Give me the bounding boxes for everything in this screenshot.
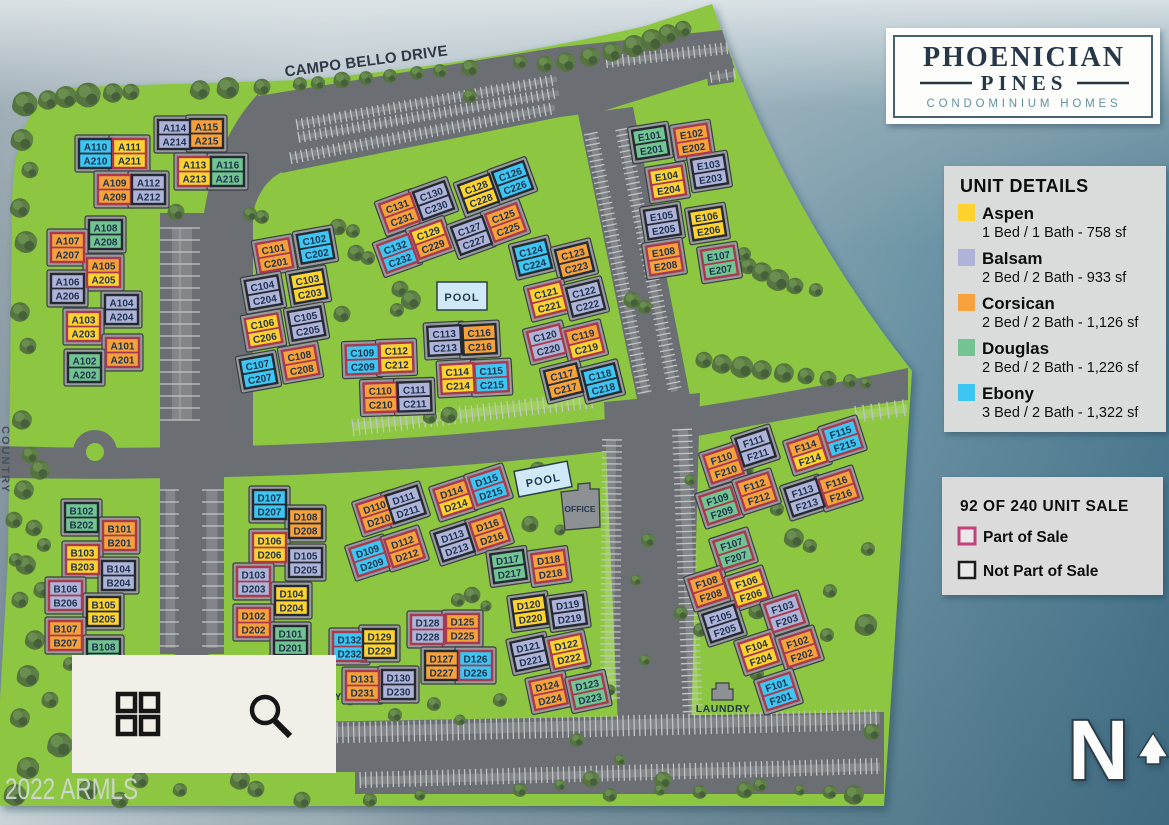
svg-text:D230: D230: [387, 688, 411, 699]
svg-text:A207: A207: [56, 251, 80, 262]
svg-text:A212: A212: [137, 193, 161, 204]
svg-text:Not Part of Sale: Not Part of Sale: [983, 563, 1099, 580]
svg-text:B108: B108: [92, 643, 116, 654]
svg-text:A214: A214: [163, 138, 187, 149]
svg-text:D104: D104: [280, 590, 304, 601]
svg-text:A104: A104: [110, 299, 134, 310]
svg-text:D227: D227: [430, 669, 454, 680]
svg-text:B101: B101: [108, 525, 132, 536]
svg-text:D207: D207: [258, 508, 282, 519]
svg-text:92 OF 240 UNIT SALE: 92 OF 240 UNIT SALE: [960, 498, 1129, 515]
svg-text:C211: C211: [403, 399, 427, 411]
svg-text:A206: A206: [56, 292, 80, 303]
svg-text:C115: C115: [479, 366, 503, 378]
svg-text:LAUNDRY: LAUNDRY: [696, 703, 750, 715]
svg-text:D129: D129: [368, 633, 392, 644]
svg-text:D105: D105: [294, 552, 318, 563]
svg-text:B104: B104: [107, 565, 131, 576]
svg-text:C111: C111: [403, 385, 427, 397]
svg-text:B204: B204: [107, 579, 131, 590]
svg-text:A108: A108: [94, 224, 118, 235]
svg-text:B203: B203: [71, 563, 95, 574]
svg-text:A203: A203: [72, 330, 96, 341]
svg-text:COUNTRY: COUNTRY: [0, 426, 11, 494]
svg-text:C209: C209: [351, 362, 376, 374]
svg-text:D127: D127: [430, 655, 454, 666]
svg-text:A204: A204: [110, 313, 134, 324]
svg-text:D103: D103: [242, 571, 266, 582]
svg-text:A211: A211: [118, 157, 142, 168]
svg-text:A213: A213: [183, 175, 207, 186]
svg-text:A105: A105: [92, 262, 116, 273]
svg-text:D125: D125: [451, 618, 475, 629]
svg-text:B105: B105: [92, 601, 116, 612]
svg-text:A215: A215: [195, 137, 219, 148]
svg-text:D206: D206: [258, 551, 282, 562]
svg-text:D128: D128: [416, 619, 440, 630]
svg-text:A115: A115: [195, 123, 219, 134]
svg-text:D108: D108: [294, 513, 318, 524]
svg-text:D107: D107: [258, 494, 282, 505]
svg-text:A107: A107: [56, 237, 80, 248]
svg-text:D101: D101: [279, 630, 303, 641]
svg-text:A216: A216: [216, 175, 240, 186]
svg-text:B202: B202: [70, 521, 94, 532]
svg-text:A210: A210: [84, 157, 108, 168]
svg-text:1 Bed / 1 Bath - 758 sf: 1 Bed / 1 Bath - 758 sf: [982, 225, 1127, 241]
svg-text:C216: C216: [468, 342, 493, 354]
svg-text:A208: A208: [94, 238, 118, 249]
svg-text:C114: C114: [445, 367, 469, 379]
svg-text:A202: A202: [73, 371, 97, 382]
svg-text:PINES: PINES: [981, 71, 1068, 95]
svg-text:B102: B102: [70, 507, 94, 518]
svg-text:A114: A114: [163, 124, 187, 135]
svg-text:D229: D229: [368, 647, 392, 658]
svg-text:A205: A205: [92, 276, 116, 287]
svg-text:A106: A106: [56, 278, 80, 289]
svg-text:D228: D228: [416, 633, 440, 644]
svg-text:Balsam: Balsam: [982, 249, 1042, 268]
svg-text:2 Bed / 2 Bath - 1,226 sf: 2 Bed / 2 Bath - 1,226 sf: [982, 360, 1139, 376]
svg-text:C113: C113: [432, 329, 456, 341]
svg-text:D232: D232: [338, 650, 362, 661]
svg-text:D203: D203: [242, 585, 266, 596]
svg-text:D205: D205: [294, 566, 318, 577]
svg-text:C116: C116: [467, 328, 491, 340]
svg-text:D225: D225: [451, 632, 475, 643]
svg-text:Ebony: Ebony: [982, 384, 1034, 403]
svg-text:A102: A102: [73, 357, 97, 368]
svg-text:D202: D202: [242, 626, 266, 637]
svg-text:D131: D131: [351, 675, 375, 686]
svg-text:B207: B207: [54, 639, 78, 650]
svg-text:A111: A111: [118, 143, 141, 154]
svg-text:C213: C213: [433, 343, 458, 355]
svg-text:A209: A209: [103, 193, 127, 204]
svg-text:B205: B205: [92, 615, 116, 626]
svg-text:D106: D106: [258, 537, 282, 548]
svg-text:C212: C212: [385, 360, 410, 372]
svg-text:D201: D201: [279, 644, 303, 655]
svg-text:2 Bed / 2 Bath - 1,126 sf: 2 Bed / 2 Bath - 1,126 sf: [982, 315, 1139, 331]
svg-text:POOL: POOL: [444, 292, 479, 304]
svg-text:B206: B206: [54, 599, 78, 610]
svg-text:D204: D204: [280, 604, 304, 615]
svg-text:D132: D132: [338, 636, 362, 647]
svg-text:D102: D102: [242, 612, 266, 623]
svg-text:D226: D226: [464, 669, 488, 680]
svg-text:A110: A110: [84, 143, 108, 154]
svg-text:Corsican: Corsican: [982, 294, 1055, 313]
svg-text:3 Bed / 2 Bath - 1,322 sf: 3 Bed / 2 Bath - 1,322 sf: [982, 405, 1139, 421]
svg-text:B103: B103: [71, 549, 95, 560]
svg-text:Douglas: Douglas: [982, 339, 1049, 358]
svg-text:C110: C110: [368, 386, 392, 398]
svg-text:B107: B107: [54, 625, 78, 636]
svg-text:CONDOMINIUM HOMES: CONDOMINIUM HOMES: [927, 98, 1122, 110]
svg-text:2022 ARMLS: 2022 ARMLS: [5, 773, 138, 806]
svg-text:A109: A109: [103, 179, 127, 190]
svg-text:OFFICE: OFFICE: [564, 504, 595, 514]
svg-text:B201: B201: [108, 539, 132, 550]
svg-text:C214: C214: [446, 381, 471, 393]
svg-text:A112: A112: [137, 179, 161, 190]
svg-text:C215: C215: [480, 380, 505, 392]
svg-text:Aspen: Aspen: [982, 204, 1034, 223]
svg-text:A201: A201: [111, 356, 135, 367]
svg-text:N: N: [1068, 703, 1129, 797]
svg-text:B106: B106: [54, 585, 78, 596]
svg-text:Part of Sale: Part of Sale: [983, 529, 1069, 546]
svg-text:UNIT DETAILS: UNIT DETAILS: [960, 176, 1089, 196]
svg-text:A113: A113: [183, 161, 207, 172]
svg-text:C109: C109: [350, 348, 375, 360]
svg-text:2 Bed / 2 Bath - 933 sf: 2 Bed / 2 Bath - 933 sf: [982, 270, 1127, 286]
svg-text:A103: A103: [72, 316, 96, 327]
svg-text:C112: C112: [384, 346, 408, 358]
svg-text:D126: D126: [464, 655, 488, 666]
svg-text:D208: D208: [294, 527, 318, 538]
svg-text:A101: A101: [111, 342, 135, 353]
svg-text:A116: A116: [216, 161, 240, 172]
svg-text:C210: C210: [369, 400, 394, 412]
svg-text:D130: D130: [387, 674, 411, 685]
svg-text:PHOENICIAN: PHOENICIAN: [923, 42, 1125, 73]
svg-text:D231: D231: [351, 689, 375, 700]
